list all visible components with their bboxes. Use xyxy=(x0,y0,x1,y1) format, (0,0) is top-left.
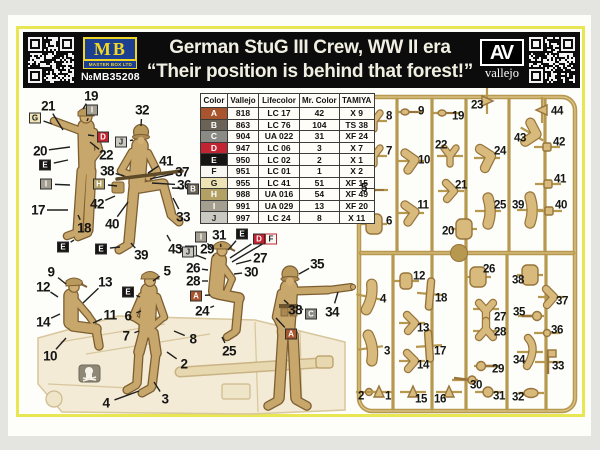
figure-part-number: 9 xyxy=(48,265,55,279)
sprue-part-number: 8 xyxy=(386,111,392,123)
paint-table-head: ColorVallejoLifecolorMr. ColorTAMIYA xyxy=(201,94,375,108)
paint-code-cell: 818 xyxy=(228,108,259,120)
paint-code-cell: 997 xyxy=(228,212,259,224)
color-letter-badge: J xyxy=(182,247,194,258)
figure-part-number: 10 xyxy=(43,349,57,363)
figure-part-number: 34 xyxy=(325,305,339,319)
sprue-part-number: 23 xyxy=(471,100,483,112)
sprue-part-number: 12 xyxy=(413,271,425,283)
figure-part-number: 7 xyxy=(123,329,130,343)
sprue-part-number: 16 xyxy=(434,394,446,406)
sprue-part-number: 42 xyxy=(553,137,565,149)
paint-table-header: Mr. Color xyxy=(300,94,340,108)
color-letter-badge: D xyxy=(97,132,109,143)
paint-code-cell: 8 xyxy=(300,212,340,224)
paint-code-cell: TS 38 xyxy=(339,119,374,131)
figure-part-number: 38 xyxy=(100,164,114,178)
sprue-part-number: 13 xyxy=(417,323,429,335)
sprue-part-number: 26 xyxy=(483,264,495,276)
figure-part-number: 38 xyxy=(288,303,302,317)
paint-code-cell: 104 xyxy=(300,119,340,131)
sprue-part-number: 22 xyxy=(435,140,447,152)
sprue-part-number: 19 xyxy=(452,111,464,123)
color-letter-badge: J xyxy=(115,137,127,148)
paint-table-row: G955LC 4151XF 15 xyxy=(201,177,375,189)
color-swatch-cell: F xyxy=(201,165,228,177)
sprue-part-number: 14 xyxy=(417,360,429,372)
color-swatch-cell: H xyxy=(201,189,228,201)
color-swatch-cell: A xyxy=(201,108,228,120)
figure-part-number: 11 xyxy=(103,308,116,322)
mb-logo: MB MASTER BOX LTD №MB35208 xyxy=(81,37,140,83)
figure-part-number: 14 xyxy=(36,315,50,329)
figure-part-number: 6 xyxy=(125,309,132,323)
sprue-part xyxy=(482,88,493,114)
paint-code-cell: 3 xyxy=(300,142,340,154)
sprue-part-number: 3 xyxy=(384,346,390,358)
paint-code-cell: 955 xyxy=(228,177,259,189)
paint-code-cell: 988 xyxy=(228,189,259,201)
paint-code-cell: X 11 xyxy=(339,212,374,224)
color-letter-badge: I xyxy=(86,105,98,116)
paint-code-cell: LC 76 xyxy=(259,119,300,131)
figure-part-number: 2 xyxy=(181,357,188,371)
sprue-part-number: 40 xyxy=(555,200,567,212)
sprue-part-number: 43 xyxy=(514,133,526,145)
figure-part-number: 25 xyxy=(222,344,236,358)
paint-code-cell: 51 xyxy=(300,177,340,189)
paint-code-cell: 947 xyxy=(228,142,259,154)
paint-table-header: Color xyxy=(201,94,228,108)
color-swatch-cell: C xyxy=(201,131,228,143)
figure-part-number: 40 xyxy=(105,217,119,231)
sprue-part-number: 32 xyxy=(512,392,524,404)
boxart-instruction-sheet: { "header": { "title": "German StuG III … xyxy=(0,0,600,450)
paint-code-cell: XF 15 xyxy=(339,177,374,189)
figure-part-number: 13 xyxy=(98,275,112,289)
paint-table-header: Vallejo xyxy=(228,94,259,108)
mb-logo-box: MB xyxy=(83,37,137,61)
color-letter-badge: E xyxy=(122,287,134,298)
figure-part-number: 4 xyxy=(103,396,110,410)
figure-part-number: 29 xyxy=(200,242,214,256)
paint-code-cell: 904 xyxy=(228,131,259,143)
sprue-part-number: 31 xyxy=(493,391,505,403)
vallejo-name: vallejo xyxy=(485,66,519,81)
color-letter-badge: E xyxy=(57,242,69,253)
vallejo-logo: AV vallejo xyxy=(480,39,524,81)
sprue-part-number: 30 xyxy=(470,380,482,392)
figure-part-number: 22 xyxy=(99,148,113,162)
paint-code-cell: X 9 xyxy=(339,108,374,120)
qr-code-icon xyxy=(529,37,575,83)
paint-code-cell: XF 49 xyxy=(339,189,374,201)
paint-code-cell: X 7 xyxy=(339,142,374,154)
sprue-part-number: 20 xyxy=(442,226,454,238)
sprue-part-number: 24 xyxy=(494,146,506,158)
skull-emblem xyxy=(79,365,100,382)
figure-part-number: 33 xyxy=(176,210,190,224)
color-letter-badge: E xyxy=(236,229,248,240)
paint-code-cell: X 1 xyxy=(339,154,374,166)
sprue-part-number: 6 xyxy=(386,216,392,228)
sprue-part-number: 44 xyxy=(551,106,563,118)
figure-part-number: 39 xyxy=(134,248,148,262)
sprue-part-number: 29 xyxy=(492,364,504,376)
sprue-part xyxy=(451,219,477,239)
sprue-part-number: 41 xyxy=(554,174,566,186)
sprue-part-number: 17 xyxy=(434,346,446,358)
sprue-part-number: 39 xyxy=(512,200,524,212)
sprue-part-number: 1 xyxy=(385,391,391,403)
color-letter-badge: I xyxy=(195,232,207,243)
sprue-part-number: 27 xyxy=(494,312,506,324)
paint-code-cell: 31 xyxy=(300,131,340,143)
paint-code-cell: LC 02 xyxy=(259,154,300,166)
paint-code-cell: 13 xyxy=(300,200,340,212)
paint-table-row: H988UA 01654XF 49 xyxy=(201,189,375,201)
figure-part-number: 28 xyxy=(186,274,200,288)
sprue-part-number: 7 xyxy=(386,146,392,158)
figure-part-number: 8 xyxy=(190,332,197,346)
vallejo-logo-letters: AV xyxy=(490,43,514,63)
paint-code-cell: 1 xyxy=(300,165,340,177)
header-titles: German StuG III Crew, WW II era “Their p… xyxy=(140,36,480,84)
figure-part-number: 3 xyxy=(162,392,169,406)
sprue-part-number: 25 xyxy=(494,200,506,212)
paint-code-cell: LC 24 xyxy=(259,212,300,224)
paint-code-cell: X 2 xyxy=(339,165,374,177)
paint-code-cell: LC 06 xyxy=(259,142,300,154)
figure-part-number: 35 xyxy=(310,257,324,271)
sprue-part-number: 36 xyxy=(551,325,563,337)
paint-code-cell: 42 xyxy=(300,108,340,120)
color-swatch-cell: J xyxy=(201,212,228,224)
color-letter-badge: A xyxy=(190,291,202,302)
figure-part-number: 24 xyxy=(195,304,209,318)
kit-subtitle: “Their position is behind that forest!” xyxy=(142,60,478,84)
figure-part-number: 41 xyxy=(159,154,173,168)
paint-code-cell: XF 24 xyxy=(339,131,374,143)
figure-part-number: 30 xyxy=(244,265,258,279)
sprue-part-number: 15 xyxy=(415,394,427,406)
sprue-part-number: 2 xyxy=(358,391,364,403)
sprue-part-number: 34 xyxy=(513,355,525,367)
sprue-part-number: 37 xyxy=(556,296,568,308)
paint-code-cell: 951 xyxy=(228,165,259,177)
paint-table-header: TAMIYA xyxy=(339,94,374,108)
color-swatch-cell: G xyxy=(201,177,228,189)
color-letter-badge: E xyxy=(39,160,51,171)
paint-table-header: Lifecolor xyxy=(259,94,300,108)
figure-part-number: 43 xyxy=(168,242,182,256)
mb-logo-letters: MB xyxy=(94,40,127,58)
paint-code-cell: UA 016 xyxy=(259,189,300,201)
sprue-part-number: 9 xyxy=(418,106,424,118)
color-swatch-cell: D xyxy=(201,142,228,154)
figure-part-number: 5 xyxy=(164,264,171,278)
color-letter-badge: B xyxy=(187,184,199,195)
paint-table-row: J997LC 248X 11 xyxy=(201,212,375,224)
figure-part-number: 19 xyxy=(84,89,98,103)
color-letter-badge: C xyxy=(305,309,317,320)
paint-code-cell: XF 20 xyxy=(339,200,374,212)
figure-part-number: 27 xyxy=(253,251,267,265)
figure-part-number: 20 xyxy=(33,144,47,158)
paint-code-cell: 991 xyxy=(228,200,259,212)
color-letter-badge: D xyxy=(253,234,265,245)
color-letter-badge: H xyxy=(93,179,105,190)
figure-part-number: 31 xyxy=(212,228,226,242)
figure-part-number: 32 xyxy=(135,103,149,117)
paint-code-cell: UA 022 xyxy=(259,131,300,143)
paint-table-row: E950LC 022X 1 xyxy=(201,154,375,166)
product-number: №MB35208 xyxy=(81,71,140,83)
color-letter-badge: E xyxy=(95,244,107,255)
paint-conversion-table: ColorVallejoLifecolorMr. ColorTAMIYA A81… xyxy=(200,93,375,224)
kit-title: German StuG III Crew, WW II era xyxy=(142,36,478,60)
figure-part-number: 12 xyxy=(36,280,50,294)
figure-part-number: 42 xyxy=(90,197,104,211)
color-letter-badge: A xyxy=(285,329,297,340)
color-letter-badge: I xyxy=(40,179,52,190)
figure-part-number: 17 xyxy=(31,203,45,217)
color-swatch-cell: I xyxy=(201,200,228,212)
sprue-part-number: 28 xyxy=(494,327,506,339)
figure-part-number: 21 xyxy=(41,99,55,113)
figure-part-number: 18 xyxy=(77,221,91,235)
paint-code-cell: 2 xyxy=(300,154,340,166)
paint-table-row: B863LC 76104TS 38 xyxy=(201,119,375,131)
paint-code-cell: LC 17 xyxy=(259,108,300,120)
paint-table-row: F951LC 011X 2 xyxy=(201,165,375,177)
sprue-part-number: 18 xyxy=(435,293,447,305)
color-letter-badge: F xyxy=(265,234,277,245)
paint-code-cell: LC 41 xyxy=(259,177,300,189)
sprue-part-number: 21 xyxy=(455,180,467,192)
sprue-part-number: 5 xyxy=(361,183,367,195)
header-bar: MB MASTER BOX LTD №MB35208 German StuG I… xyxy=(23,32,580,88)
color-swatch-cell: B xyxy=(201,119,228,131)
paint-code-cell: 54 xyxy=(300,189,340,201)
sprue-part-number: 11 xyxy=(417,200,428,212)
vallejo-logo-box: AV xyxy=(480,39,524,66)
sprue-part-number: 38 xyxy=(512,275,524,287)
sprue-part-number: 10 xyxy=(418,155,430,167)
paint-code-cell: 950 xyxy=(228,154,259,166)
paint-code-cell: LC 01 xyxy=(259,165,300,177)
color-letter-badge: G xyxy=(29,113,41,124)
paint-table-row: A818LC 1742X 9 xyxy=(201,108,375,120)
sprue-part-number: 35 xyxy=(513,307,525,319)
sprue-part-number: 33 xyxy=(552,361,564,373)
paint-code-cell: 863 xyxy=(228,119,259,131)
color-swatch-cell: E xyxy=(201,154,228,166)
paint-table-row: I991UA 02913XF 20 xyxy=(201,200,375,212)
paint-code-cell: UA 029 xyxy=(259,200,300,212)
sprue-part-number: 4 xyxy=(380,294,386,306)
mb-company-name: MASTER BOX LTD xyxy=(83,61,137,69)
paint-table-row: C904UA 02231XF 24 xyxy=(201,131,375,143)
qr-code-icon xyxy=(28,37,74,83)
paint-table-row: D947LC 063X 7 xyxy=(201,142,375,154)
